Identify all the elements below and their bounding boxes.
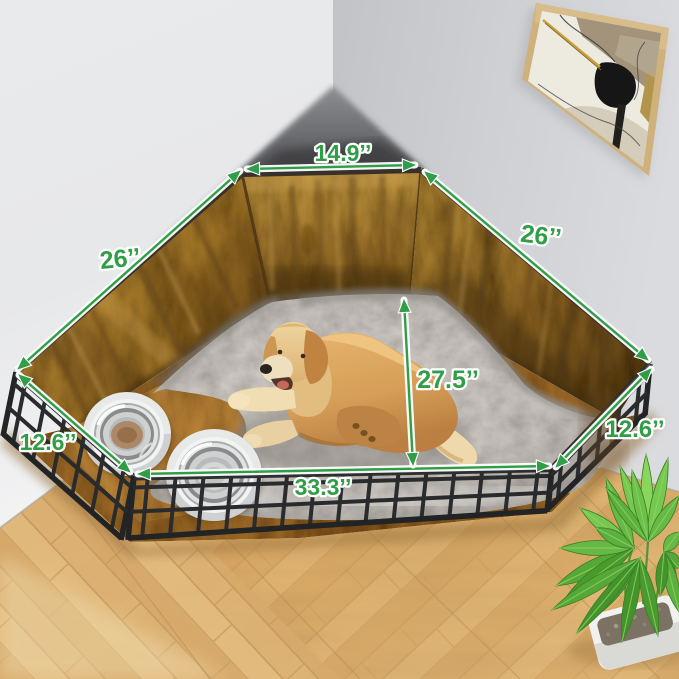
svg-text:33.3’’: 33.3’’ (295, 474, 352, 500)
svg-text:26’’: 26’’ (519, 220, 563, 253)
svg-text:12.6’’: 12.6’’ (605, 416, 664, 443)
svg-text:12.6’’: 12.6’’ (20, 429, 77, 455)
svg-text:27.5’’: 27.5’’ (417, 366, 479, 394)
svg-text:14.9’’: 14.9’’ (315, 140, 372, 166)
svg-text:26’’: 26’’ (98, 243, 141, 275)
